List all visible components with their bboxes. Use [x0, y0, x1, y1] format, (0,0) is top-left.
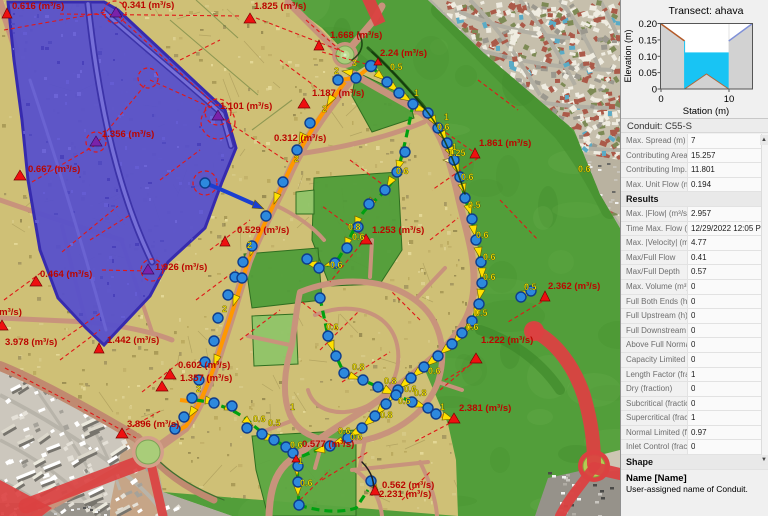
svg-text:2: 2: [247, 240, 252, 250]
svg-text:2.231 (m³/s): 2.231 (m³/s): [379, 489, 431, 500]
svg-text:0.6: 0.6: [483, 272, 496, 282]
svg-text:0.464 (m³/s): 0.464 (m³/s): [40, 269, 92, 280]
svg-text:0.8: 0.8: [384, 376, 397, 386]
svg-text:10: 10: [724, 94, 735, 105]
svg-text:0.6: 0.6: [338, 426, 351, 436]
svg-text:2: 2: [294, 154, 299, 164]
svg-text:2.381 (m³/s): 2.381 (m³/s): [459, 403, 511, 414]
svg-text:0.8: 0.8: [348, 222, 361, 232]
svg-text:0.312 (m³/s): 0.312 (m³/s): [274, 133, 326, 144]
svg-text:1.356 (m³/s): 1.356 (m³/s): [102, 129, 154, 140]
svg-text:2.362 (m³/s): 2.362 (m³/s): [548, 281, 600, 292]
svg-text:1.222 (m³/s): 1.222 (m³/s): [481, 335, 533, 346]
svg-text:1.861 (m³/s): 1.861 (m³/s): [479, 138, 531, 149]
svg-text:0.5: 0.5: [524, 282, 537, 292]
svg-text:0.602 (m³/s): 0.602 (m³/s): [178, 360, 230, 371]
svg-text:2: 2: [222, 304, 227, 314]
svg-text:0.6: 0.6: [326, 322, 339, 332]
svg-text:0.616 (m³/s): 0.616 (m³/s): [12, 1, 64, 12]
svg-text:1: 1: [414, 88, 419, 98]
svg-text:1.668 (m³/s): 1.668 (m³/s): [330, 30, 382, 41]
svg-text:2: 2: [196, 384, 201, 394]
svg-text:0.6: 0.6: [398, 396, 411, 406]
svg-text:0.5: 0.5: [475, 308, 488, 318]
svg-text:0.5: 0.5: [390, 62, 403, 72]
svg-text:3.896 (m³/s): 3.896 (m³/s): [127, 419, 179, 430]
svg-text:1.253 (m³/s): 1.253 (m³/s): [372, 225, 424, 236]
svg-text:0.6: 0.6: [578, 164, 591, 174]
svg-text:2: 2: [322, 104, 327, 114]
svg-text:0.6: 0.6: [437, 122, 450, 132]
svg-text:0.577 (m³/s): 0.577 (m³/s): [302, 439, 354, 450]
svg-text:0.6: 0.6: [461, 172, 474, 182]
svg-text:1.926 (m³/s): 1.926 (m³/s): [155, 262, 207, 273]
svg-text:0.6: 0.6: [466, 322, 479, 332]
svg-text:2: 2: [334, 66, 339, 76]
svg-text:0.05: 0.05: [639, 68, 658, 79]
svg-text:0.5: 0.5: [268, 418, 281, 428]
svg-text:1: 1: [444, 112, 449, 122]
svg-text:0.5: 0.5: [468, 200, 481, 210]
svg-text:0.6: 0.6: [428, 366, 441, 376]
svg-text:1: 1: [440, 402, 445, 412]
svg-text:0.6: 0.6: [476, 230, 489, 240]
svg-text:0.10: 0.10: [639, 52, 658, 63]
svg-text:1.442 (m³/s): 1.442 (m³/s): [107, 335, 159, 346]
svg-text:1.825 (m³/s): 1.825 (m³/s): [254, 1, 306, 12]
svg-text:0.8: 0.8: [414, 388, 427, 398]
svg-text:1: 1: [298, 456, 303, 466]
svg-text:Station (m): Station (m): [683, 106, 729, 117]
svg-text:3.978 (m³/s): 3.978 (m³/s): [5, 337, 57, 348]
svg-text:1.25: 1.25: [448, 148, 466, 158]
svg-text:0.6: 0.6: [290, 440, 303, 450]
svg-text:0.341 (m³/s): 0.341 (m³/s): [122, 0, 174, 11]
svg-text:Elevation (m): Elevation (m): [623, 29, 633, 82]
svg-text:1.187 (m³/s): 1.187 (m³/s): [312, 88, 364, 99]
svg-text:(m³/s): (m³/s): [0, 307, 22, 318]
svg-text:0.15: 0.15: [639, 35, 658, 46]
svg-text:2.24 (m³/s): 2.24 (m³/s): [380, 48, 427, 59]
svg-text:1.101 (m³/s): 1.101 (m³/s): [220, 101, 272, 112]
svg-text:1.357 (m³/s): 1.357 (m³/s): [180, 373, 232, 384]
svg-text:0: 0: [658, 94, 663, 105]
svg-text:0.6: 0.6: [352, 232, 365, 242]
svg-text:0.20: 0.20: [639, 19, 658, 30]
svg-text:0: 0: [652, 85, 657, 96]
svg-text:0.8: 0.8: [380, 410, 393, 420]
svg-text:0.6: 0.6: [330, 260, 343, 270]
svg-text:0.6: 0.6: [300, 478, 313, 488]
svg-text:0.8: 0.8: [352, 362, 365, 372]
svg-text:0.6: 0.6: [253, 414, 266, 424]
svg-text:0.667 (m³/s): 0.667 (m³/s): [28, 164, 80, 175]
svg-text:1: 1: [290, 402, 295, 412]
svg-text:Transect: ahava: Transect: ahava: [669, 5, 744, 17]
svg-text:0.6: 0.6: [396, 166, 409, 176]
svg-text:3: 3: [352, 58, 357, 68]
svg-text:0.529 (m³/s): 0.529 (m³/s): [237, 225, 289, 236]
svg-text:0.6: 0.6: [483, 252, 496, 262]
